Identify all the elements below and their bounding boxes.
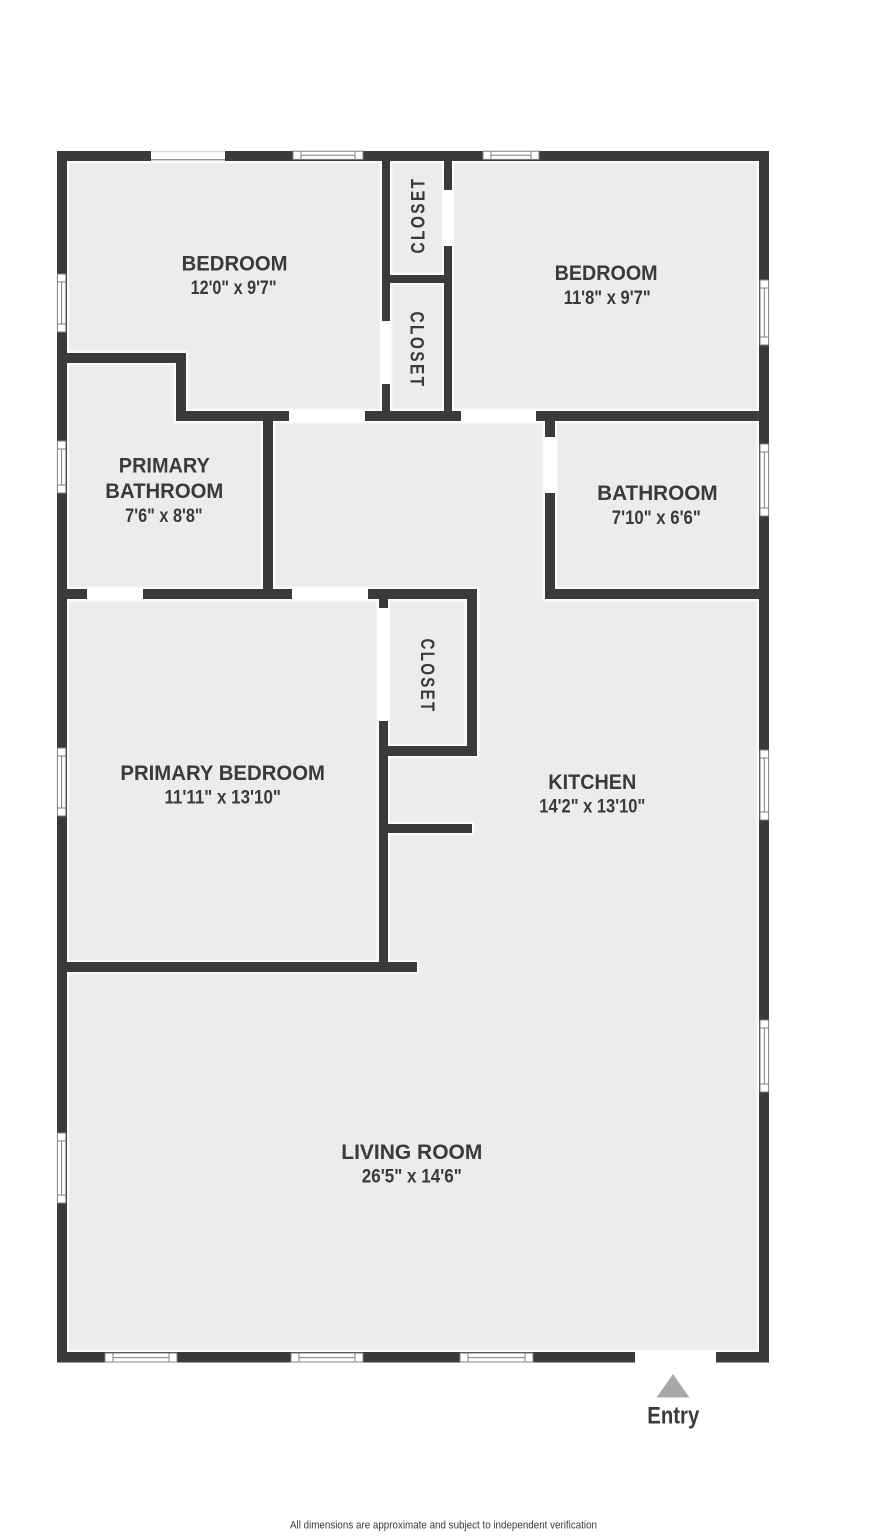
svg-text:7'6" x 8'8": 7'6" x 8'8" <box>125 505 203 527</box>
svg-text:PRIMARY BEDROOM: PRIMARY BEDROOM <box>120 762 325 785</box>
svg-text:LIVING ROOM: LIVING ROOM <box>341 1141 482 1164</box>
svg-text:BEDROOM: BEDROOM <box>182 253 288 276</box>
svg-text:Entry: Entry <box>647 1403 700 1430</box>
svg-text:All dimensions are approximate: All dimensions are approximate and subje… <box>290 1520 597 1532</box>
svg-text:11'11" x 13'10": 11'11" x 13'10" <box>164 787 281 809</box>
svg-text:7'10" x 6'6": 7'10" x 6'6" <box>612 507 701 529</box>
svg-text:11'8" x 9'7": 11'8" x 9'7" <box>564 287 651 309</box>
svg-text:CLOSET: CLOSET <box>416 639 438 714</box>
svg-text:26'5" x 14'6": 26'5" x 14'6" <box>362 1166 462 1188</box>
svg-text:PRIMARY: PRIMARY <box>119 455 210 478</box>
svg-text:BEDROOM: BEDROOM <box>555 262 658 285</box>
svg-text:BATHROOM: BATHROOM <box>597 482 718 505</box>
svg-text:CLOSET: CLOSET <box>405 312 427 389</box>
svg-text:12'0" x 9'7": 12'0" x 9'7" <box>191 277 277 299</box>
svg-text:BATHROOM: BATHROOM <box>105 480 223 503</box>
svg-text:CLOSET: CLOSET <box>407 177 429 254</box>
svg-text:KITCHEN: KITCHEN <box>548 771 636 794</box>
svg-text:14'2" x 13'10": 14'2" x 13'10" <box>539 796 645 818</box>
